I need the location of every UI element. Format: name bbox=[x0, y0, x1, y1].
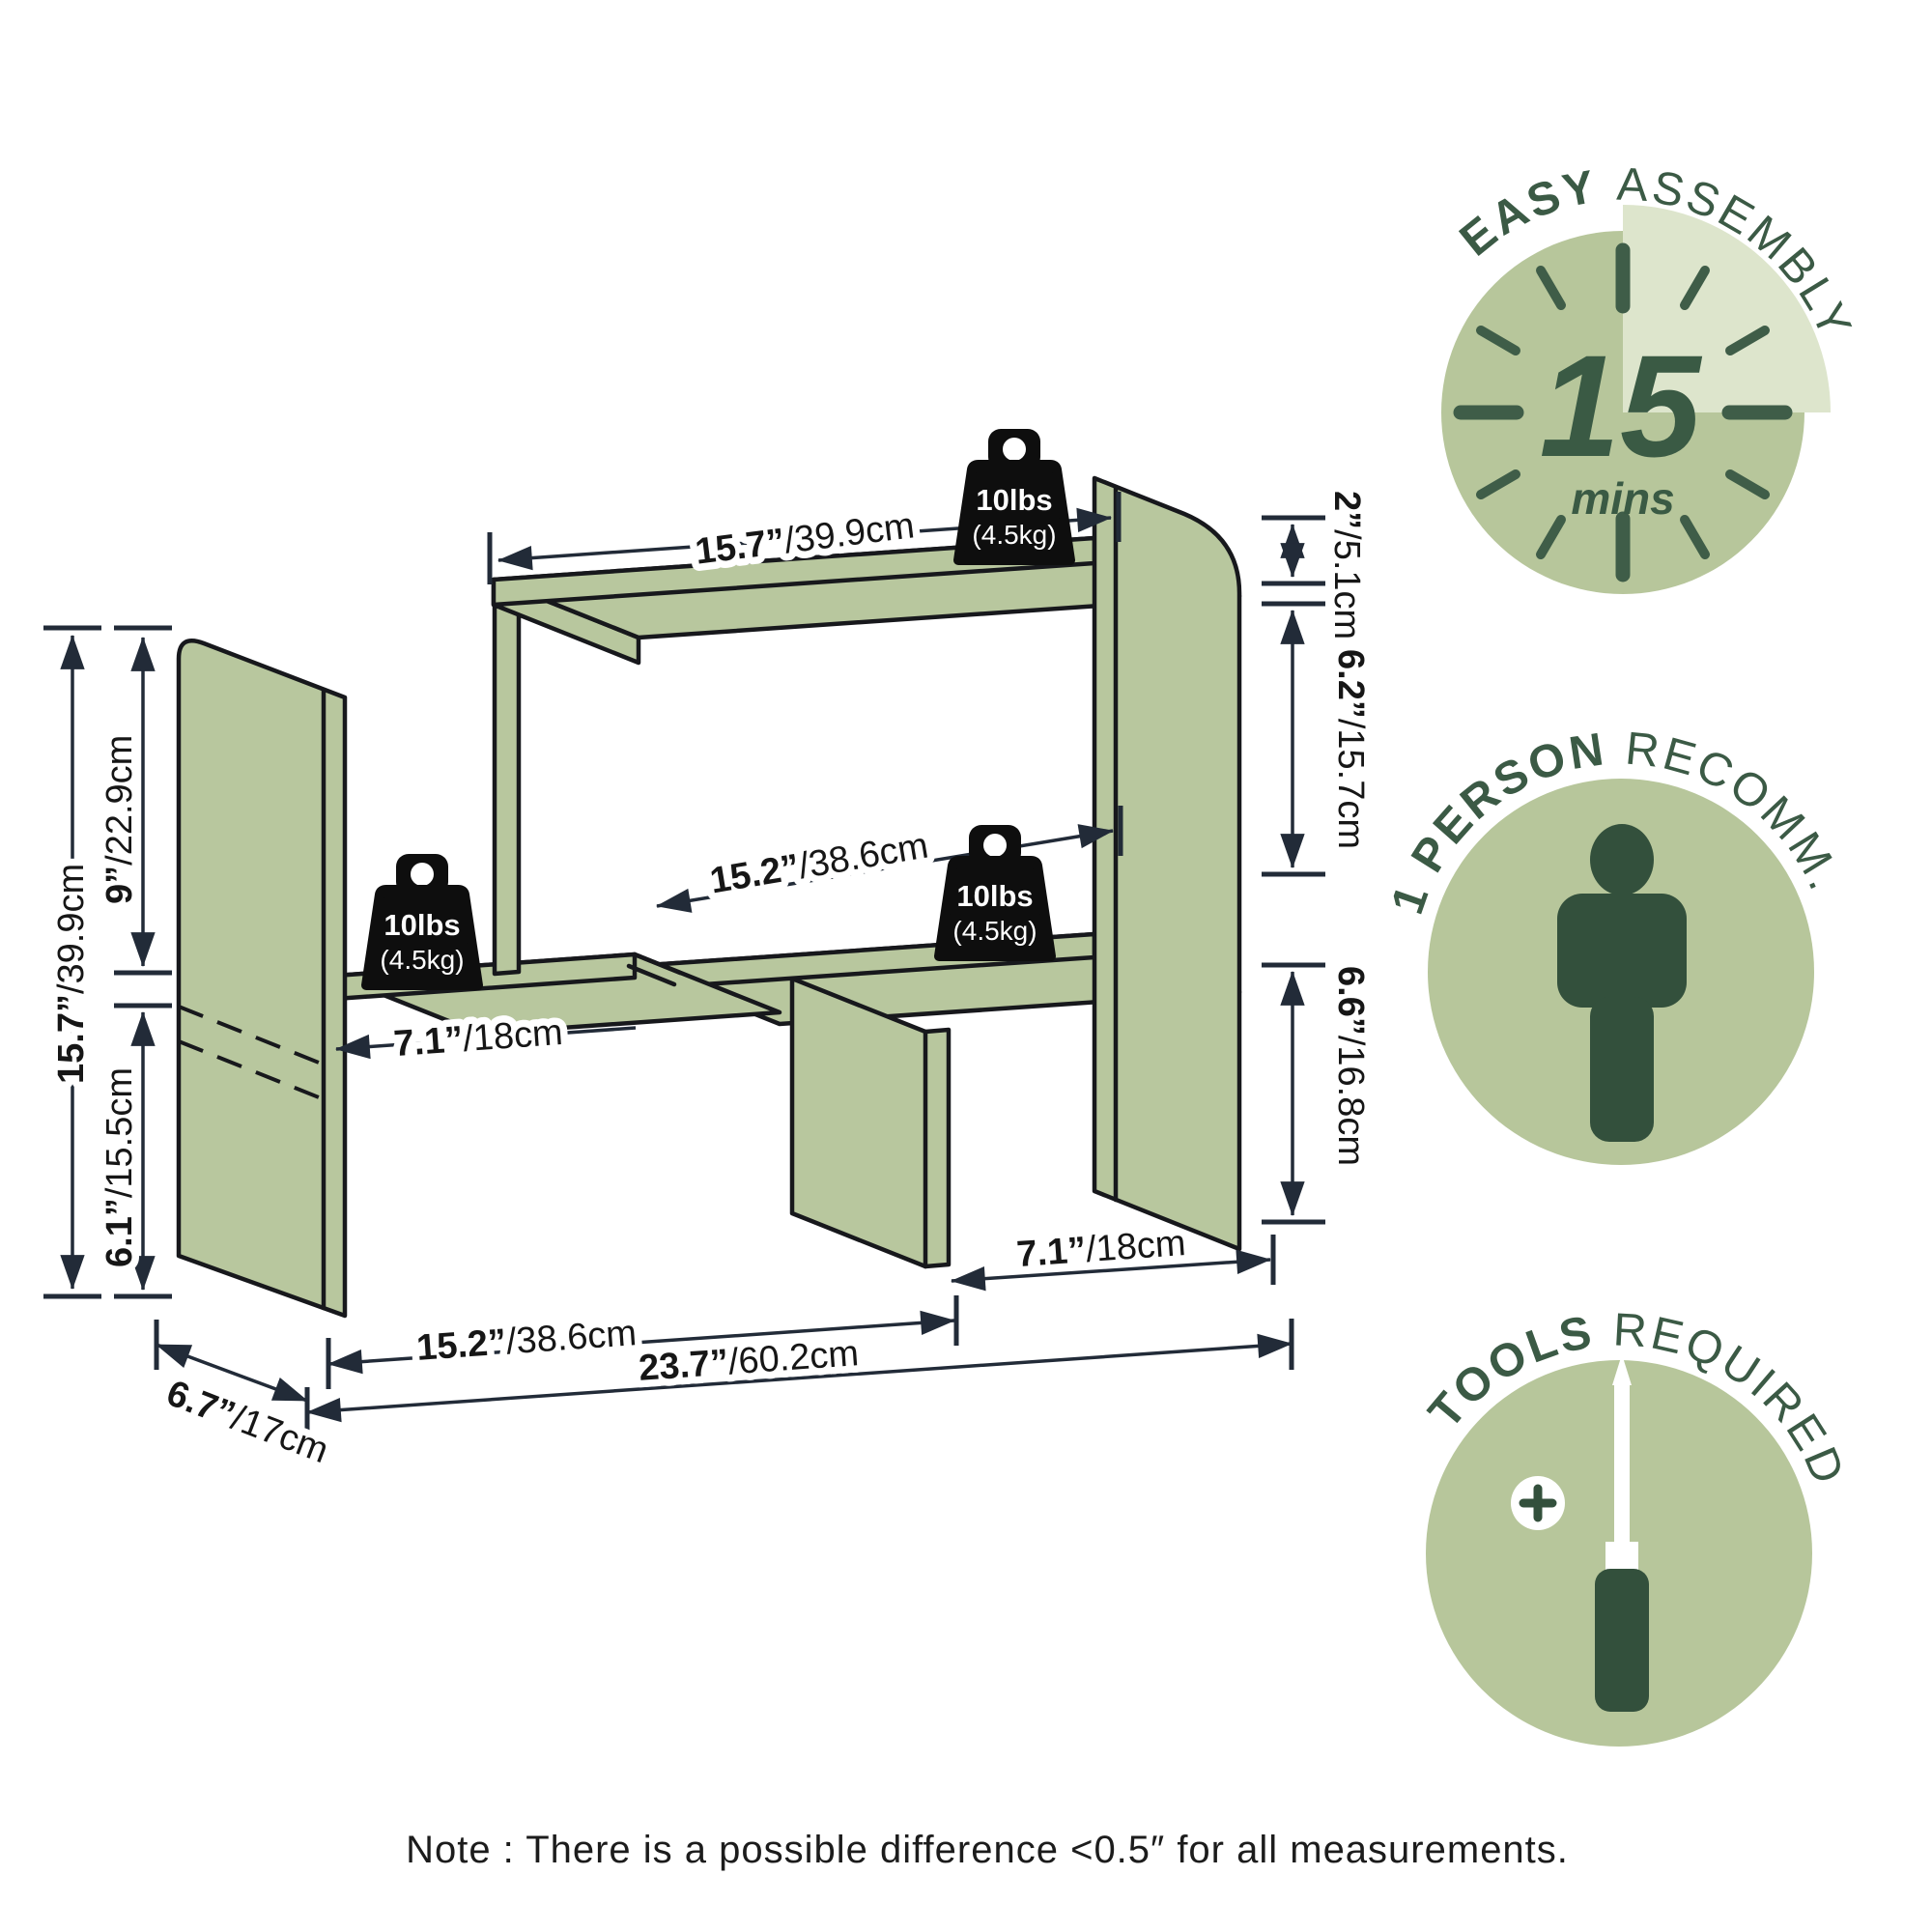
svg-text:(4.5kg): (4.5kg) bbox=[972, 520, 1056, 550]
weight-capacity-icons: 10lbs (4.5kg) 10lbs (4.5kg) 10lbs (4.5kg… bbox=[366, 429, 1070, 985]
assembly-duration: 15 bbox=[1540, 325, 1703, 487]
tools-required-badge: TOOLS REQUIRED bbox=[1419, 1304, 1855, 1747]
diagram-canvas: 15.7”/39.9cm 15.2”/38.6cm 7.1”/18cm 2”/5… bbox=[0, 0, 1932, 1932]
assembly-duration-unit: mins bbox=[1571, 473, 1674, 524]
dim-bottom-opening-width: 15.2”/38.6cm bbox=[415, 1313, 639, 1369]
note-text: Note : There is a possible difference <0… bbox=[406, 1829, 1569, 1871]
svg-text:(4.5kg): (4.5kg) bbox=[952, 916, 1037, 946]
right-side-panel bbox=[1094, 478, 1239, 1249]
dim-lower-opening-height: 6.6”/16.8cm bbox=[1330, 966, 1371, 1166]
dim-lower-left-height: 6.1”/15.5cm bbox=[99, 1067, 140, 1267]
weight-icon: 10lbs (4.5kg) bbox=[958, 429, 1070, 560]
dim-left-shelf-length: 7.1”/18cm bbox=[392, 1012, 564, 1065]
weight-icon: 10lbs (4.5kg) bbox=[366, 854, 478, 985]
phillips-screw-icon bbox=[1511, 1476, 1565, 1530]
svg-text:10lbs: 10lbs bbox=[384, 908, 460, 942]
dim-upper-opening-height: 6.2”/15.7cm bbox=[1330, 649, 1371, 849]
dim-right-top-offset: 2”/5.1cm bbox=[1326, 491, 1367, 639]
center-support-leg bbox=[792, 979, 949, 1266]
svg-text:(4.5kg): (4.5kg) bbox=[380, 945, 464, 975]
easy-assembly-badge: EASY ASSEMBLY 15 mins bbox=[1441, 159, 1861, 594]
dim-upper-left-height: 9”/22.9cm bbox=[99, 735, 140, 904]
svg-text:10lbs: 10lbs bbox=[956, 879, 1033, 913]
dim-middle-opening-width: 15.2”/38.6cm bbox=[707, 825, 931, 901]
dim-total-height: 15.7”/39.9cm bbox=[51, 864, 92, 1084]
product-dimension-sheet: 15.7”/39.9cm 15.2”/38.6cm 7.1”/18cm 2”/5… bbox=[0, 0, 1932, 1932]
left-side-panel bbox=[179, 640, 345, 1316]
upper-divider-panel bbox=[495, 605, 519, 974]
one-person-badge: 1 PERSON RECOMM. bbox=[1381, 723, 1851, 1165]
svg-text:10lbs: 10lbs bbox=[976, 483, 1052, 517]
